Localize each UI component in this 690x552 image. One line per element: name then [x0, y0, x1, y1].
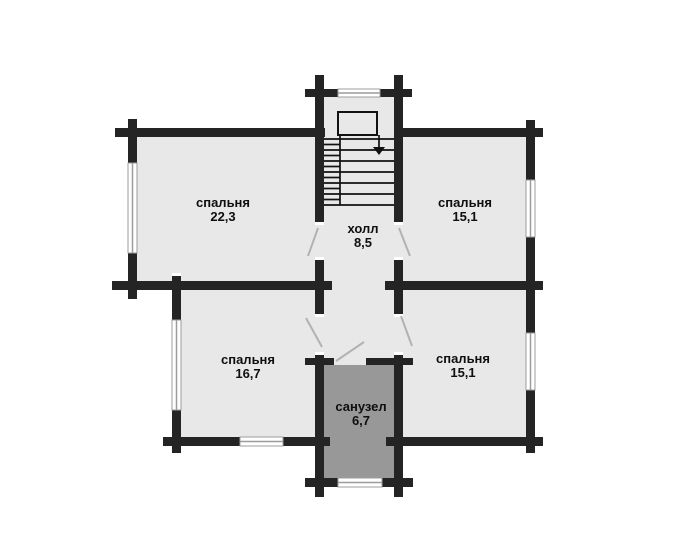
- window-bedroom-top-right: [526, 180, 535, 237]
- wall-bottom-right: [386, 437, 543, 446]
- wall-hall-right-mid: [394, 257, 403, 317]
- window-bedroom-bottom-right: [526, 333, 535, 390]
- floor-plan-page: спальня 22,3 спальня 15,1 холл 8,5 спаль…: [0, 0, 690, 552]
- wall-top-left: [115, 128, 325, 137]
- room-name: спальня: [438, 195, 492, 210]
- wall-cap: [315, 257, 324, 260]
- wall-mid-right: [385, 281, 543, 290]
- room-name: санузел: [335, 399, 386, 414]
- wall-hall-right-upper: [394, 75, 403, 225]
- wall-top-right: [394, 128, 543, 137]
- room-name: спальня: [436, 351, 490, 366]
- wall-hall-left-lower: [315, 352, 324, 500]
- room-area: 8,5: [354, 235, 372, 250]
- door-opening-top-right: [394, 225, 403, 257]
- wall-cap: [394, 352, 403, 355]
- wall-right: [526, 120, 535, 453]
- window-bathroom-bottom: [338, 478, 382, 487]
- floor-plan-drawing: спальня 22,3 спальня 15,1 холл 8,5 спаль…: [0, 0, 690, 552]
- wall-hall-right-lower: [394, 352, 403, 500]
- wall-cap: [394, 257, 403, 260]
- wall-mid-left: [112, 281, 332, 290]
- wall-hall-left-upper: [315, 75, 324, 225]
- wall-hall-left-mid: [315, 257, 324, 317]
- wall-cap: [315, 497, 324, 500]
- wall-cap: [394, 497, 403, 500]
- room-name: спальня: [221, 352, 275, 367]
- window-bedroom-top-left: [128, 163, 137, 253]
- wall-bathroom-top-right: [366, 358, 413, 365]
- wall-cap: [128, 299, 137, 302]
- wall-cap: [315, 222, 324, 225]
- wall-cap: [315, 314, 324, 317]
- wall-cap: [315, 352, 324, 355]
- window-stairbay-top: [338, 89, 380, 97]
- wall-cap: [172, 273, 181, 276]
- door-opening-bottom-right: [394, 317, 403, 352]
- window-bedroom-bottom-left-bottom: [240, 437, 283, 446]
- wall-cap: [394, 222, 403, 225]
- window-bedroom-bottom-left-side: [172, 320, 181, 410]
- room-name: спальня: [196, 195, 250, 210]
- room-area: 15,1: [452, 209, 477, 224]
- door-opening-bottom-left: [315, 317, 324, 352]
- room-area: 15,1: [450, 365, 475, 380]
- room-area: 6,7: [352, 413, 370, 428]
- room-name: холл: [347, 221, 378, 236]
- room-area: 22,3: [210, 209, 235, 224]
- room-area: 16,7: [235, 366, 260, 381]
